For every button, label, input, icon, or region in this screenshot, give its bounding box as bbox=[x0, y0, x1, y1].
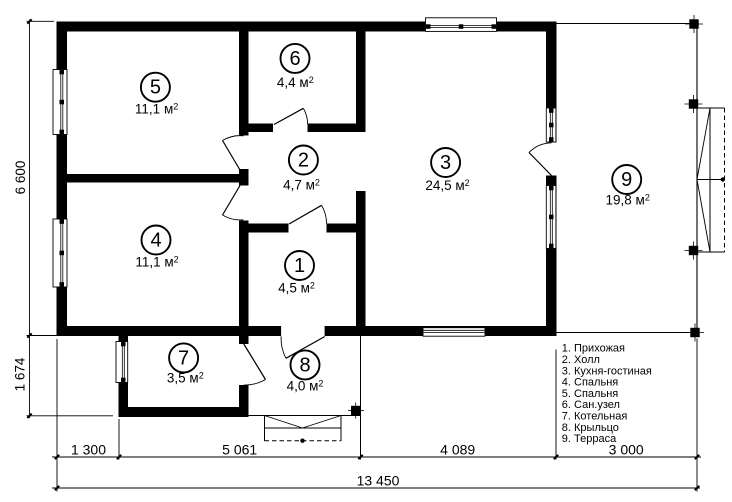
svg-text:13 450: 13 450 bbox=[357, 473, 400, 489]
svg-text:4 089: 4 089 bbox=[440, 442, 475, 458]
svg-text:9. Терраса: 9. Терраса bbox=[562, 433, 617, 445]
svg-text:1 674: 1 674 bbox=[13, 357, 28, 391]
svg-text:7. Котельная: 7. Котельная bbox=[562, 411, 628, 423]
svg-text:6. Сан.узел: 6. Сан.узел bbox=[562, 399, 620, 411]
svg-text:6: 6 bbox=[289, 48, 300, 70]
svg-text:5. Спальня: 5. Спальня bbox=[562, 388, 618, 400]
svg-text:19,8 м2: 19,8 м2 bbox=[606, 192, 650, 207]
svg-text:1: 1 bbox=[294, 255, 305, 277]
svg-text:24,5 м2: 24,5 м2 bbox=[425, 178, 469, 193]
svg-text:4,7 м2: 4,7 м2 bbox=[283, 178, 320, 193]
svg-text:5: 5 bbox=[150, 77, 161, 99]
svg-text:4,5 м2: 4,5 м2 bbox=[278, 281, 315, 296]
svg-text:7: 7 bbox=[178, 348, 189, 370]
svg-text:4. Спальня: 4. Спальня bbox=[562, 377, 618, 389]
svg-text:11,1 м2: 11,1 м2 bbox=[135, 255, 178, 270]
svg-text:4,4 м2: 4,4 м2 bbox=[277, 75, 314, 90]
svg-text:3: 3 bbox=[440, 152, 451, 174]
svg-text:3. Кухня-гостиная: 3. Кухня-гостиная bbox=[562, 365, 652, 377]
svg-text:11,1 м2: 11,1 м2 bbox=[135, 102, 178, 117]
svg-text:6 600: 6 600 bbox=[13, 161, 28, 195]
svg-text:8. Крыльцо: 8. Крыльцо bbox=[562, 422, 619, 434]
svg-text:9: 9 bbox=[621, 169, 632, 191]
svg-text:2. Холл: 2. Холл bbox=[562, 354, 600, 366]
svg-text:5 061: 5 061 bbox=[222, 442, 257, 458]
svg-text:1. Прихожая: 1. Прихожая bbox=[562, 343, 625, 355]
svg-text:8: 8 bbox=[299, 355, 310, 377]
svg-text:4,0 м2: 4,0 м2 bbox=[287, 379, 324, 394]
svg-text:1 300: 1 300 bbox=[71, 442, 106, 458]
svg-text:2: 2 bbox=[298, 150, 309, 172]
svg-text:4: 4 bbox=[150, 230, 161, 252]
svg-text:3,5 м2: 3,5 м2 bbox=[167, 370, 204, 385]
